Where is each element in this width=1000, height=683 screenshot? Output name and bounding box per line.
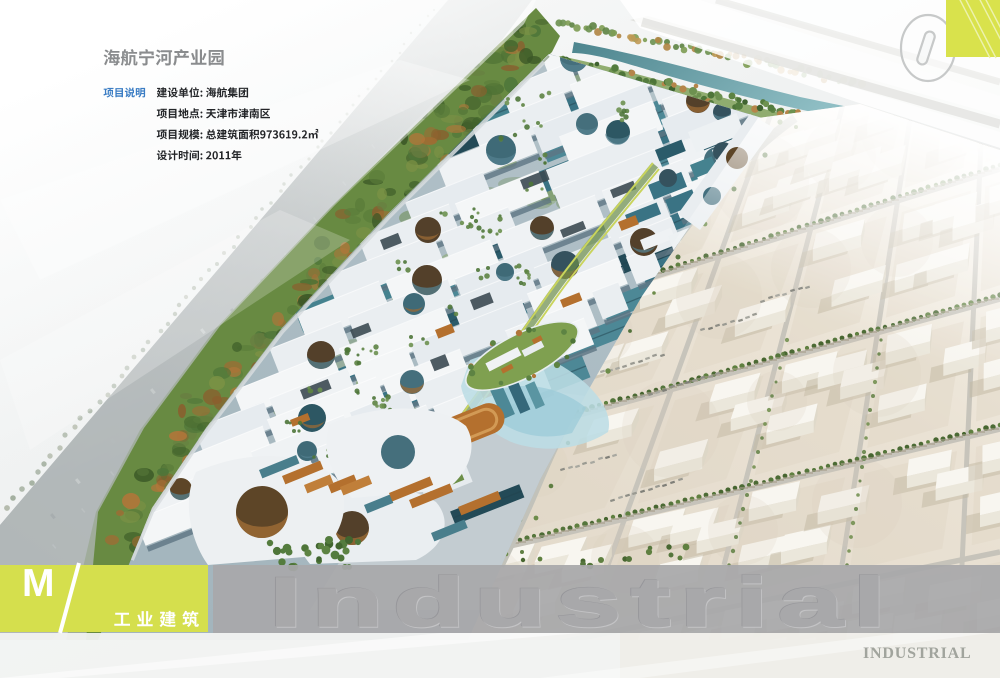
svg-text:M: M <box>22 562 55 605</box>
svg-text:INDUSTRIAL: INDUSTRIAL <box>863 645 971 662</box>
svg-text:Industrial: Industrial <box>269 564 895 642</box>
